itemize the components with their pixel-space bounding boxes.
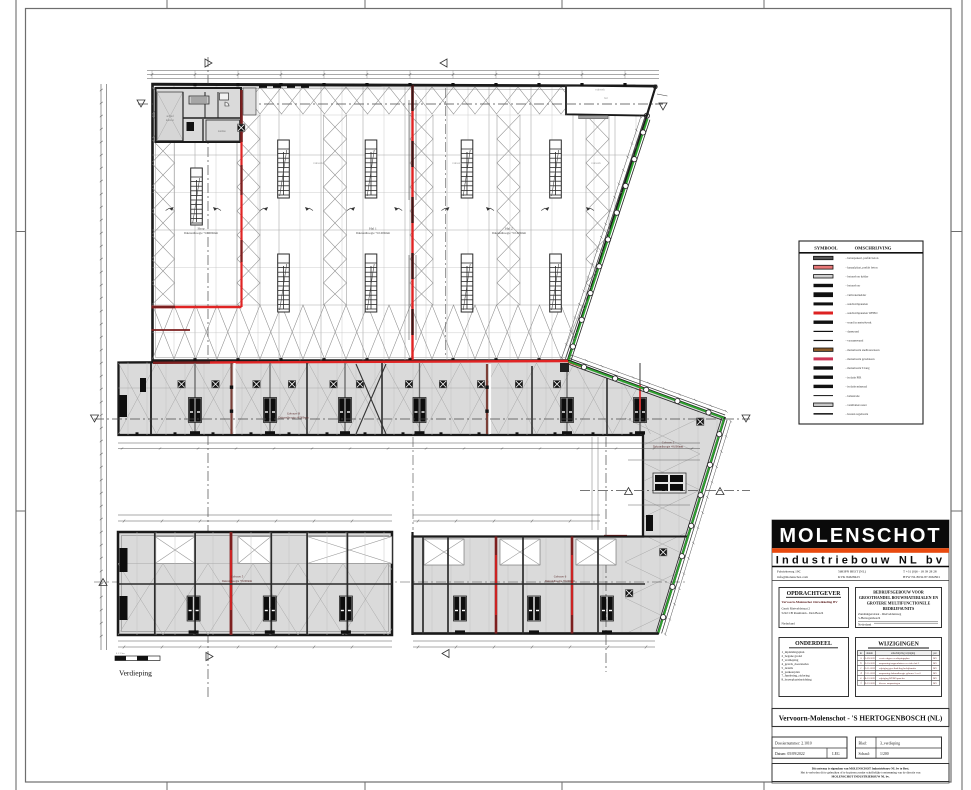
svg-text:info@molenschot.com: info@molenschot.com <box>777 575 808 579</box>
svg-text:19-12-2022: 19-12-2022 <box>864 682 876 685</box>
svg-text:- wand in metselwerk: - wand in metselwerk <box>846 320 872 324</box>
svg-text:- isolatie mineraal: - isolatie mineraal <box>846 385 868 389</box>
svg-text:- houten regelwerk: - houten regelwerk <box>846 412 869 416</box>
svg-text:MOLENSCHOT: MOLENSCHOT <box>779 525 941 547</box>
svg-text:LEG: LEG <box>832 752 840 756</box>
svg-text:- isolatie PIR: - isolatie PIR <box>846 375 862 379</box>
svg-text:Dakrandhoogte +8.000mm: Dakrandhoogte +8.000mm <box>545 580 576 583</box>
svg-text:MV: MV <box>933 682 937 685</box>
svg-text:8_bouwplaatsinrichting: 8_bouwplaatsinrichting <box>782 678 813 682</box>
svg-text:Dakrandhoogte +8.000mm: Dakrandhoogte +8.000mm <box>222 580 253 583</box>
svg-text:BEDRIJFSUNITS: BEDRIJFSUNITS <box>883 606 915 611</box>
svg-text:Dakrandhoogte +10.000mm: Dakrandhoogte +10.000mm <box>184 231 219 235</box>
svg-text:3_verdieping: 3_verdieping <box>880 741 900 745</box>
svg-text:omschrijving wijziging: omschrijving wijziging <box>891 652 916 655</box>
svg-text:Verdieping: Verdieping <box>119 669 152 678</box>
svg-text:wijziging gevelindeling bedrij: wijziging gevelindeling bedrijfsunits <box>879 667 916 670</box>
svg-text:MV: MV <box>933 677 937 680</box>
svg-text:12-10-2022: 12-10-2022 <box>864 662 876 665</box>
svg-text:diverse aanpassingen: diverse aanpassingen <box>879 682 901 685</box>
svg-text:- ventilatierooster: - ventilatierooster <box>846 403 867 407</box>
svg-text:- vuilwaterkelder: - vuilwaterkelder <box>846 293 867 297</box>
svg-text:datum: datum <box>866 652 872 655</box>
svg-text:hal: hal <box>604 97 608 100</box>
svg-text:- metselwerk T-lang: - metselwerk T-lang <box>846 366 870 370</box>
svg-text:GROTERE MULTIFUNCTIONELE: GROTERE MULTIFUNCTIONELE <box>867 600 931 605</box>
svg-text:- balustrade: - balustrade <box>846 394 861 398</box>
svg-text:5683PN BEST (NL): 5683PN BEST (NL) <box>838 569 866 573</box>
svg-text:Schaal:: Schaal: <box>859 752 870 756</box>
svg-text:05-09-2022: 05-09-2022 <box>864 657 876 660</box>
svg-text:Dossiernummer: 2.1010: Dossiernummer: 2.1010 <box>775 741 812 745</box>
svg-text:- betonvloer: - betonvloer <box>846 284 861 288</box>
svg-text:SYMBOOL: SYMBOOL <box>814 246 837 251</box>
svg-text:Industriebouw NL bv: Industriebouw NL bv <box>776 555 945 567</box>
svg-text:OPDRACHTGEVER: OPDRACHTGEVER <box>787 591 842 597</box>
svg-text:17-11-2022: 17-11-2022 <box>864 672 876 675</box>
svg-text:Fabrieksweg 19C: Fabrieksweg 19C <box>777 569 802 573</box>
svg-text:vakwerk: vakwerk <box>595 89 605 92</box>
svg-text:08-12-2022: 08-12-2022 <box>864 677 876 680</box>
svg-text:wijziging WEBO panelen: wijziging WEBO panelen <box>879 677 906 680</box>
svg-text:Hal 2: Hal 2 <box>505 227 513 231</box>
svg-text:Dakrandhoogte +10.000mm: Dakrandhoogte +10.000mm <box>356 231 391 235</box>
svg-text:- betonvloer kelder: - betonvloer kelder <box>846 275 869 279</box>
svg-text:- vacuumwand: - vacuumwand <box>846 339 864 343</box>
svg-text:1/200: 1/200 <box>880 752 889 756</box>
svg-text:GROOTHANDEL BOUWMATERIALEN EN: GROOTHANDEL BOUWMATERIALEN EN <box>859 595 938 600</box>
svg-text:MOLENSCHOT INDUSTRIEBOUW NL bv: MOLENSCHOT INDUSTRIEBOUW NL bv. <box>832 775 890 779</box>
svg-text:Gebouw 2: Gebouw 2 <box>662 441 675 445</box>
svg-text:nr: nr <box>860 652 862 655</box>
svg-text:Blad:: Blad: <box>859 741 867 745</box>
svg-text:BEDRIJFSGEBOUW VOOR: BEDRIJFSGEBOUW VOOR <box>873 590 924 595</box>
svg-text:Gebouw 6: Gebouw 6 <box>554 575 567 579</box>
svg-text:Nederland: Nederland <box>858 622 872 626</box>
svg-text:Vervoorn-Molenschot - 'S HERTO: Vervoorn-Molenschot - 'S HERTOGENBOSCH (… <box>779 714 943 722</box>
svg-text:- sandwichpanelen WEBO: - sandwichpanelen WEBO <box>846 311 879 315</box>
svg-text:5222 CB Rosmalen - Den Bosch: 5222 CB Rosmalen - Den Bosch <box>782 611 824 615</box>
svg-text:MV: MV <box>933 657 937 660</box>
svg-text:Shop: Shop <box>198 227 205 231</box>
svg-text:ONDERDEEL: ONDERDEEL <box>795 641 832 647</box>
svg-text:Dakrandhoogte +8.000mm: Dakrandhoogte +8.000mm <box>653 446 684 449</box>
svg-text:OMSCHRIJVING: OMSCHRIJVING <box>855 246 892 251</box>
svg-text:kantine: kantine <box>218 130 226 133</box>
svg-text:0 1 2 5m: 0 1 2 5m <box>116 652 125 655</box>
svg-text:BTW NL 8632.87.366.B01: BTW NL 8632.87.366.B01 <box>903 575 940 579</box>
svg-text:vakwerk: vakwerk <box>452 162 462 165</box>
svg-text:aanpassing dakrandhoogte gebou: aanpassing dakrandhoogte gebouw 5 en 6 <box>879 672 921 675</box>
svg-text:Gebouw B: Gebouw B <box>287 412 300 416</box>
svg-text:- metselwerk snelbouwsteen: - metselwerk snelbouwsteen <box>846 348 880 352</box>
svg-text:'s-Hertogenbosch: 's-Hertogenbosch <box>858 616 881 620</box>
svg-text:02-11-2022: 02-11-2022 <box>864 667 876 670</box>
svg-text:Datum: 05/09/2022: Datum: 05/09/2022 <box>775 752 805 756</box>
svg-text:kantoor: kantoor <box>166 119 174 122</box>
svg-text:aanpassing trappenhuizen en vi: aanpassing trappenhuizen en vides hal 2 <box>879 662 920 665</box>
svg-text:Nederland: Nederland <box>782 622 796 626</box>
svg-text:- metselwerk gevelsteen: - metselwerk gevelsteen <box>846 357 875 361</box>
svg-text:- sandwichpanelen: - sandwichpanelen <box>846 302 869 306</box>
svg-text:eerste uitgave verdiepingsplan: eerste uitgave verdiepingsplan <box>879 657 910 660</box>
svg-text:KVK 84628423: KVK 84628423 <box>838 575 860 579</box>
svg-text:par: par <box>933 652 936 655</box>
svg-text:Vervoorn-Molenschot Ontwikkeli: Vervoorn-Molenschot Ontwikkeling BV <box>782 600 839 604</box>
svg-text:MV: MV <box>933 667 937 670</box>
svg-text:f: f <box>861 682 862 685</box>
svg-text:WIJZIGINGEN: WIJZIGINGEN <box>878 641 919 647</box>
svg-text:vakwerk: vakwerk <box>591 162 601 165</box>
svg-text:MV: MV <box>933 662 937 665</box>
svg-text:MV: MV <box>933 672 937 675</box>
svg-text:Dakrandhoogte +10.000mm: Dakrandhoogte +10.000mm <box>492 231 527 235</box>
svg-text:- damwand: - damwand <box>846 330 860 334</box>
svg-text:Hal 1: Hal 1 <box>369 227 377 231</box>
svg-text:vakwerk: vakwerk <box>313 162 323 165</box>
svg-text:archief: archief <box>166 115 173 118</box>
svg-text:Gebouw 5: Gebouw 5 <box>231 575 244 579</box>
svg-text:T +31 (0)6 - 18 39 28 28: T +31 (0)6 - 18 39 28 28 <box>903 569 937 573</box>
